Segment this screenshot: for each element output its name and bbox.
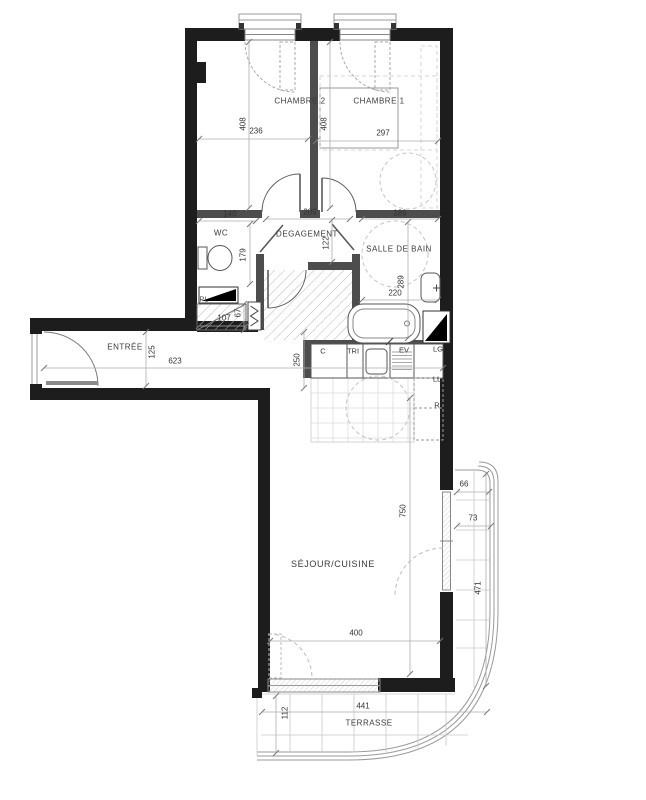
bedroom1-window (334, 14, 396, 92)
terrace-tile-grid (257, 470, 489, 756)
bedroom2-window (239, 14, 301, 92)
bathroom-duct (423, 311, 450, 343)
terrace-outline (257, 462, 498, 760)
kitchen-floor-tiles (311, 378, 414, 442)
water-heater-symbol (248, 302, 261, 330)
entry-door (30, 332, 98, 386)
wc-toilet (198, 246, 232, 271)
kitchen-counter (311, 338, 443, 378)
kitchen-appliance-slots (414, 378, 443, 440)
floor-plan: CHAMBRE 2CHAMBRE 1WCDEGAGEMENTSALLE DE B… (0, 0, 646, 800)
living-room-window (395, 490, 453, 598)
bedroom1-furniture (320, 46, 437, 208)
wc-duct (199, 287, 238, 303)
washbasin (421, 273, 440, 302)
hall-hatched-floor (264, 270, 352, 340)
bay-window (268, 634, 380, 692)
floor-plan-drawing (0, 0, 646, 800)
